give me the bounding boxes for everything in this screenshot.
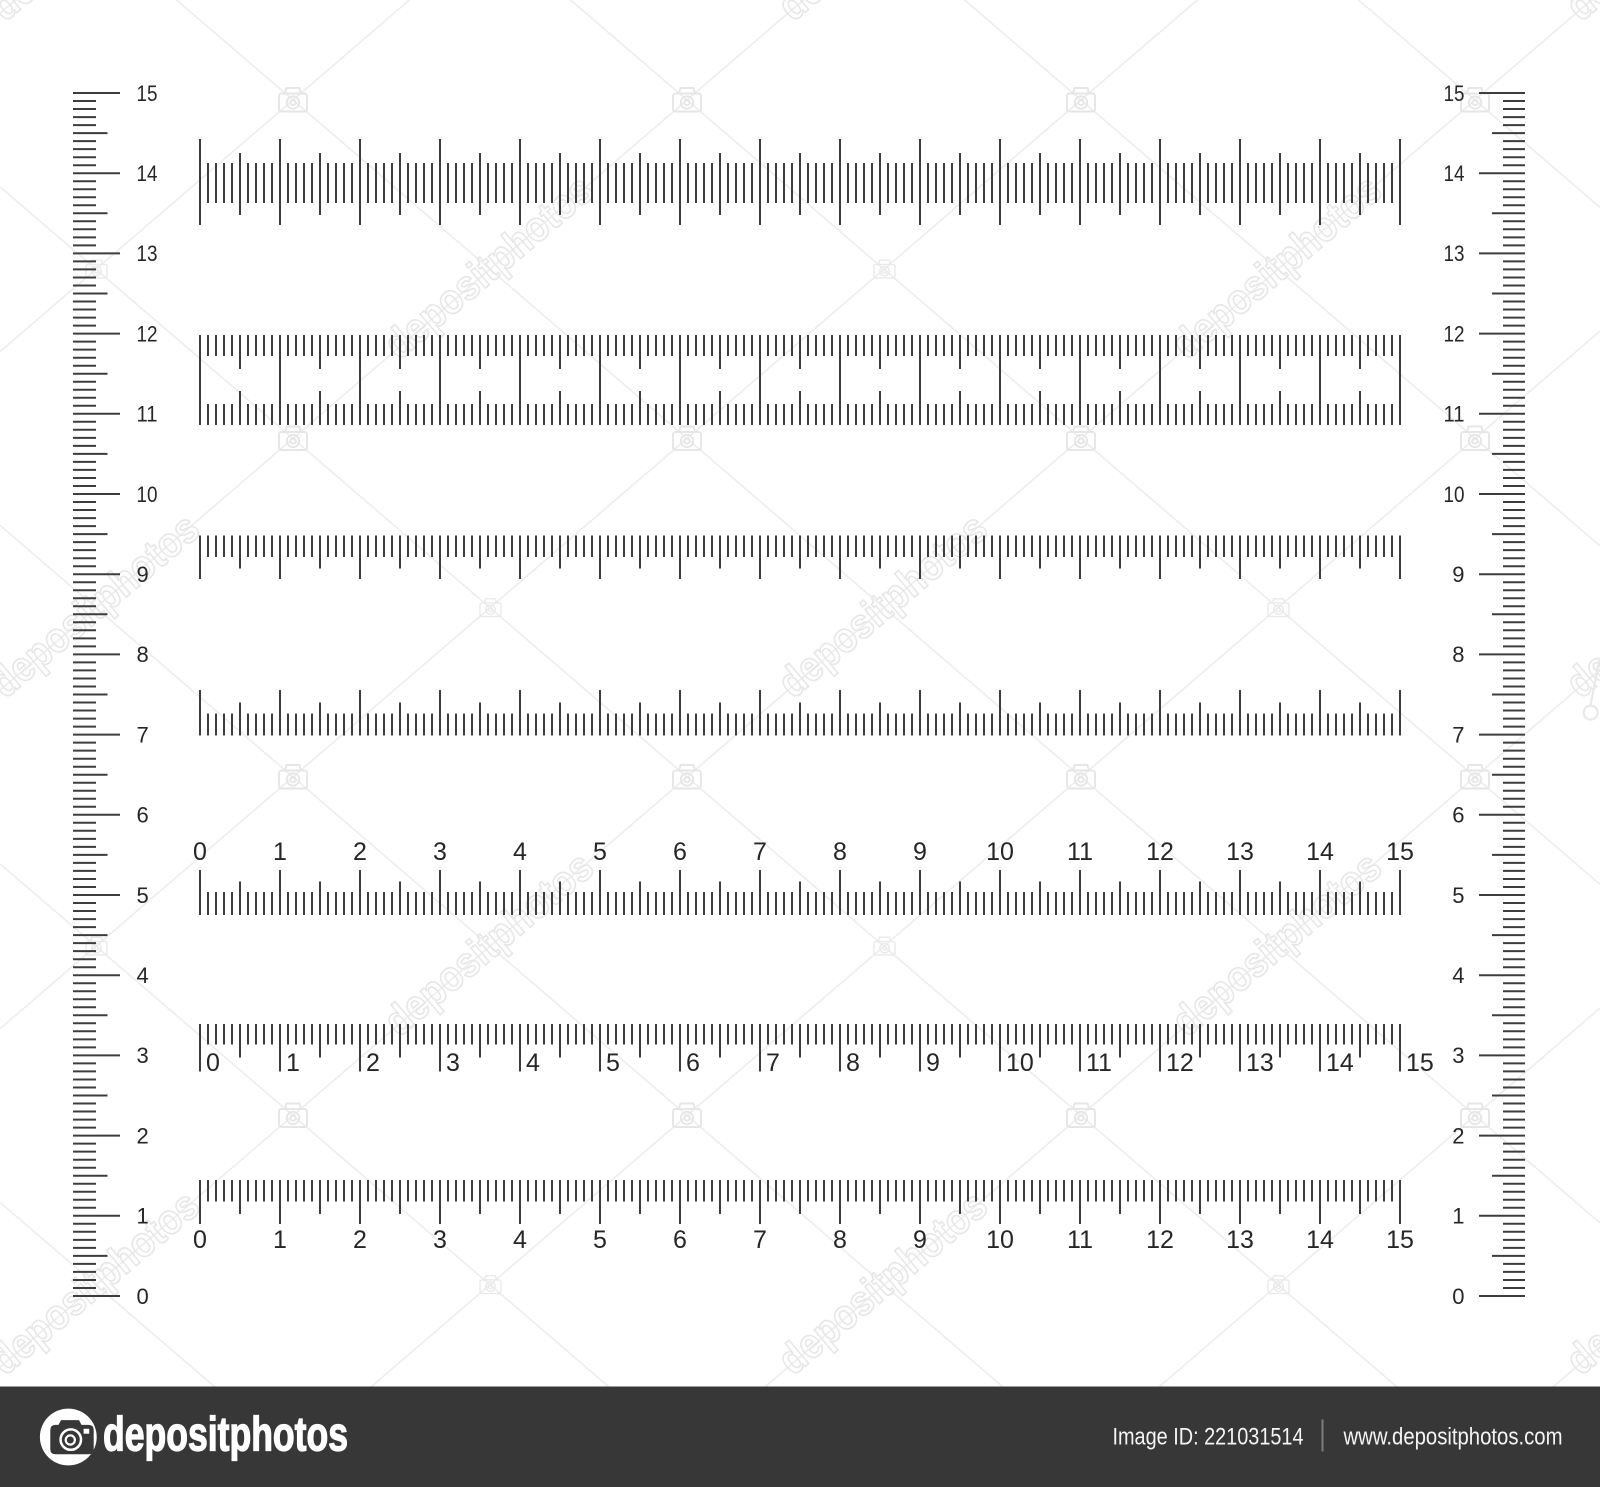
svg-text:8: 8 bbox=[1452, 642, 1464, 667]
svg-text:7: 7 bbox=[753, 1226, 767, 1254]
svg-text:5: 5 bbox=[606, 1049, 620, 1077]
svg-text:11: 11 bbox=[1444, 402, 1465, 427]
svg-text:2: 2 bbox=[1452, 1123, 1464, 1148]
svg-text:11: 11 bbox=[137, 402, 158, 427]
svg-text:13: 13 bbox=[1246, 1049, 1274, 1077]
svg-text:10: 10 bbox=[137, 482, 158, 507]
svg-text:10: 10 bbox=[1006, 1049, 1034, 1077]
svg-text:10: 10 bbox=[986, 838, 1014, 866]
svg-text:15: 15 bbox=[137, 81, 158, 106]
svg-text:14: 14 bbox=[1326, 1049, 1354, 1077]
svg-text:0: 0 bbox=[1452, 1284, 1464, 1309]
svg-text:1: 1 bbox=[286, 1049, 300, 1077]
svg-text:4: 4 bbox=[1452, 963, 1464, 988]
svg-text:14: 14 bbox=[1444, 161, 1465, 186]
svg-text:13: 13 bbox=[1444, 241, 1465, 266]
svg-text:11: 11 bbox=[1067, 1226, 1093, 1254]
svg-text:6: 6 bbox=[673, 838, 687, 866]
svg-text:12: 12 bbox=[1166, 1049, 1194, 1077]
svg-text:1: 1 bbox=[273, 838, 287, 866]
svg-text:3: 3 bbox=[1452, 1043, 1464, 1068]
svg-text:14: 14 bbox=[1306, 838, 1334, 866]
svg-text:Image ID: 221031514: Image ID: 221031514 bbox=[1113, 1424, 1304, 1451]
svg-text:13: 13 bbox=[1226, 838, 1254, 866]
svg-text:8: 8 bbox=[833, 1226, 847, 1254]
svg-text:8: 8 bbox=[846, 1049, 860, 1077]
svg-text:3: 3 bbox=[433, 838, 447, 866]
svg-text:6: 6 bbox=[686, 1049, 700, 1077]
svg-text:3: 3 bbox=[446, 1049, 460, 1077]
svg-text:1: 1 bbox=[137, 1204, 149, 1229]
svg-text:12: 12 bbox=[1146, 838, 1174, 866]
svg-text:0: 0 bbox=[193, 838, 207, 866]
svg-text:0: 0 bbox=[206, 1049, 220, 1077]
svg-text:1: 1 bbox=[1452, 1204, 1464, 1229]
svg-text:2: 2 bbox=[353, 838, 367, 866]
svg-text:15: 15 bbox=[1386, 1226, 1414, 1254]
svg-text:8: 8 bbox=[833, 838, 847, 866]
svg-text:15: 15 bbox=[1406, 1049, 1434, 1077]
svg-text:1: 1 bbox=[273, 1226, 287, 1254]
svg-text:6: 6 bbox=[137, 803, 149, 828]
svg-text:7: 7 bbox=[1452, 722, 1464, 747]
svg-text:12: 12 bbox=[137, 321, 158, 346]
svg-text:6: 6 bbox=[1452, 803, 1464, 828]
svg-text:4: 4 bbox=[513, 1226, 527, 1254]
svg-text:10: 10 bbox=[986, 1226, 1014, 1254]
svg-text:2: 2 bbox=[137, 1123, 149, 1148]
svg-text:2: 2 bbox=[366, 1049, 380, 1077]
svg-text:9: 9 bbox=[913, 1226, 927, 1254]
svg-text:3: 3 bbox=[433, 1226, 447, 1254]
svg-text:5: 5 bbox=[1452, 883, 1464, 908]
svg-text:9: 9 bbox=[1452, 562, 1464, 587]
svg-text:5: 5 bbox=[593, 1226, 607, 1254]
svg-text:2: 2 bbox=[353, 1226, 367, 1254]
svg-text:12: 12 bbox=[1444, 321, 1465, 346]
svg-text:14: 14 bbox=[1306, 1226, 1334, 1254]
svg-text:9: 9 bbox=[926, 1049, 940, 1077]
svg-text:6: 6 bbox=[673, 1226, 687, 1254]
svg-text:0: 0 bbox=[137, 1284, 149, 1309]
svg-text:13: 13 bbox=[137, 241, 158, 266]
svg-text:15: 15 bbox=[1386, 838, 1414, 866]
svg-text:14: 14 bbox=[137, 161, 158, 186]
svg-text:15: 15 bbox=[1444, 81, 1465, 106]
svg-text:7: 7 bbox=[137, 722, 149, 747]
svg-text:9: 9 bbox=[137, 562, 149, 587]
svg-text:11: 11 bbox=[1086, 1049, 1112, 1077]
svg-text:4: 4 bbox=[526, 1049, 540, 1077]
svg-text:8: 8 bbox=[137, 642, 149, 667]
svg-text:3: 3 bbox=[137, 1043, 149, 1068]
svg-text:4: 4 bbox=[137, 963, 149, 988]
svg-text:9: 9 bbox=[913, 838, 927, 866]
svg-text:13: 13 bbox=[1226, 1226, 1254, 1254]
svg-text:11: 11 bbox=[1067, 838, 1093, 866]
svg-text:depositphotos: depositphotos bbox=[103, 1409, 348, 1462]
svg-text:12: 12 bbox=[1146, 1226, 1174, 1254]
svg-text:5: 5 bbox=[593, 838, 607, 866]
svg-text:0: 0 bbox=[193, 1226, 207, 1254]
svg-text:4: 4 bbox=[513, 838, 527, 866]
svg-text:5: 5 bbox=[137, 883, 149, 908]
svg-text:7: 7 bbox=[753, 838, 767, 866]
svg-text:7: 7 bbox=[766, 1049, 780, 1077]
svg-text:www.depositphotos.com: www.depositphotos.com bbox=[1343, 1424, 1563, 1451]
svg-text:10: 10 bbox=[1444, 482, 1465, 507]
